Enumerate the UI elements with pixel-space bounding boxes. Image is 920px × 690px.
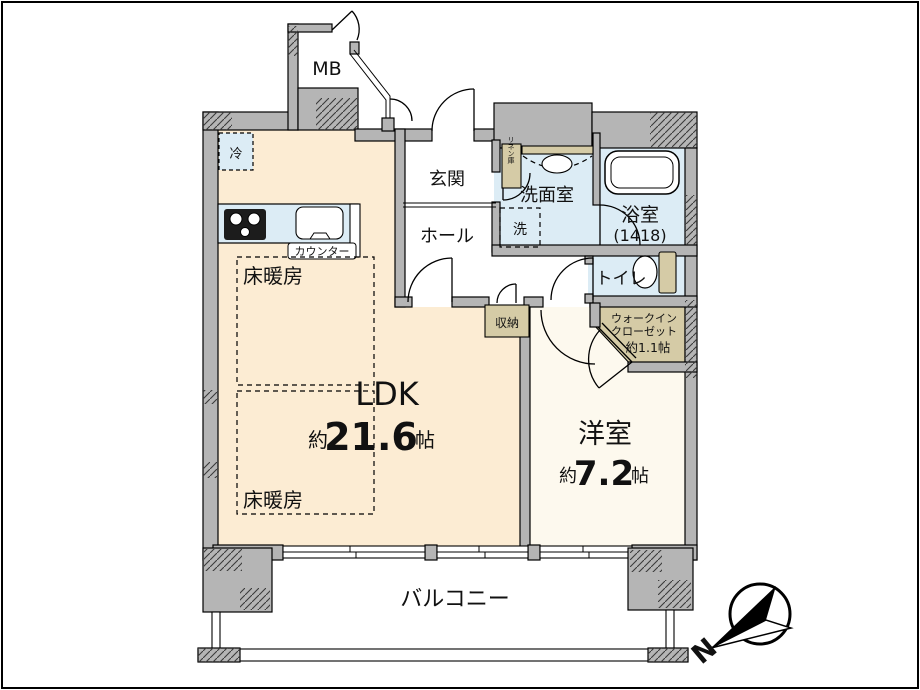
floor-plan: N MB 冷 カウンター 玄関 ホール 洗面室 洗 リネン庫 浴室 (1418)… — [0, 0, 920, 690]
stove-icon — [224, 209, 266, 240]
wall-bottom-3 — [528, 545, 540, 560]
wall-toilet-stub-top — [585, 256, 593, 264]
washbasin-icon — [542, 155, 572, 173]
window-ldk-1 — [283, 546, 425, 558]
wall-left — [203, 112, 218, 560]
wic-label-2: クローゼット — [611, 325, 677, 338]
bathtub-icon — [605, 151, 679, 194]
ldk-size-unit: 帖 — [415, 428, 435, 452]
toilet-label: トイレ — [596, 269, 647, 289]
wall-senmen-west-1 — [492, 140, 500, 172]
balcony-label: バルコニー — [400, 587, 510, 612]
senmen-label: 洗面室 — [520, 185, 574, 206]
mb-wall-stub — [350, 42, 359, 54]
wic-label-1: ウォークイン — [611, 312, 677, 325]
wall-wic-west — [590, 303, 600, 327]
youshitsu-size-value: 7.2 — [574, 454, 634, 494]
compass-north-label: N — [686, 632, 723, 670]
window-ldk-2 — [437, 546, 528, 558]
window-youshitsu — [540, 546, 632, 558]
windows — [283, 546, 632, 558]
hall-label: ホール — [420, 226, 474, 247]
wall-entry-diagonal-outer — [354, 50, 390, 118]
counter-label: カウンター — [295, 245, 350, 258]
compass-icon: N — [686, 584, 791, 671]
genkan-label: 玄関 — [429, 169, 465, 190]
wic-size-label: 約1.1帖 — [626, 340, 671, 355]
wall-ldk-youshitsu — [520, 307, 530, 548]
bath-size-label: (1418) — [613, 226, 666, 245]
shuno-label: 収納 — [495, 316, 519, 330]
bath-label: 浴室 — [621, 204, 659, 226]
balcony-railing — [198, 610, 688, 662]
ldk-size-value: 21.6 — [324, 415, 418, 459]
youshitsu-size-unit: 帖 — [631, 466, 649, 487]
sink-icon — [296, 207, 343, 239]
washer-label: 洗 — [513, 222, 527, 238]
floor-heating-label-1: 床暖房 — [243, 264, 303, 288]
wall-hall-bottom-2 — [452, 297, 489, 307]
wall-senmen-bath — [593, 133, 600, 205]
floor-heating-label-2: 床暖房 — [243, 488, 303, 512]
youshitsu-label: 洋室 — [578, 419, 632, 450]
linen-label: リネン庫 — [507, 136, 515, 165]
vanity-counter — [522, 146, 593, 154]
mb-label: MB — [312, 58, 341, 80]
ldk-label: LDK — [355, 375, 419, 413]
mb-door-arc — [332, 11, 359, 40]
wall-entry-block — [382, 118, 394, 131]
wall-ldk-hall — [395, 129, 405, 307]
fridge-label: 冷 — [229, 147, 242, 162]
wall-hall-bottom-1 — [395, 297, 412, 307]
entrance-door-arc — [432, 89, 474, 131]
wall-toilet-stub-bottom — [585, 294, 593, 303]
floor-plan-svg: N MB 冷 カウンター 玄関 ホール 洗面室 洗 リネン庫 浴室 (1418)… — [0, 0, 920, 690]
wall-toilet-wic — [590, 296, 697, 307]
wall-bottom-2 — [425, 545, 437, 560]
